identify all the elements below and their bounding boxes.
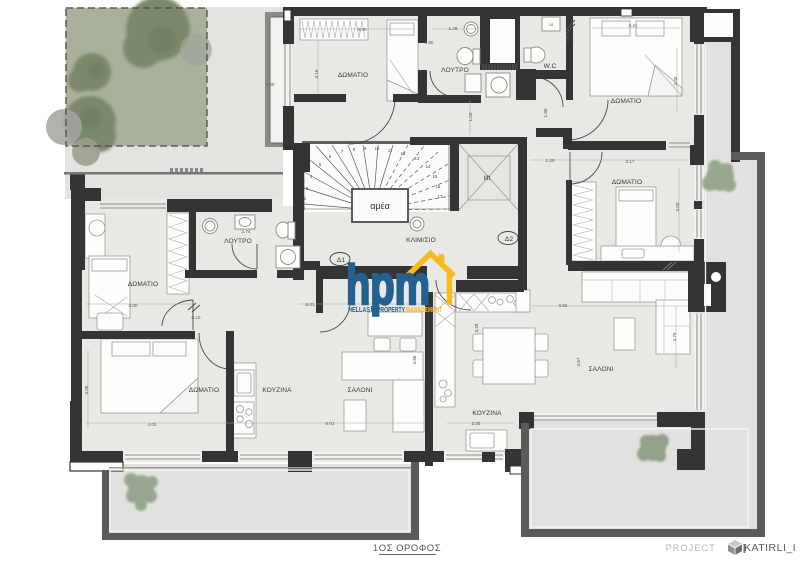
svg-text:ΔΩΜΑΤΙΟ: ΔΩΜΑΤΙΟ	[128, 281, 158, 288]
svg-text:ΔΩΜΑΤΙΟ: ΔΩΜΑΤΙΟ	[338, 72, 368, 79]
svg-text:3.45: 3.45	[673, 76, 678, 85]
svg-text:ΔΩΜΑΤΙΟ: ΔΩΜΑΤΙΟ	[611, 98, 641, 105]
svg-text:Δ2: Δ2	[505, 236, 514, 243]
svg-text:1.20: 1.20	[546, 158, 555, 163]
svg-text:3.00: 3.00	[675, 202, 680, 211]
svg-text:6.82: 6.82	[559, 303, 568, 308]
svg-text:3.00: 3.00	[358, 27, 367, 32]
svg-text:1.80: 1.80	[543, 108, 548, 117]
svg-text:Δ1: Δ1	[337, 257, 346, 264]
svg-text:ΚΛΙΜ/ΣΙΟ: ΚΛΙΜ/ΣΙΟ	[406, 237, 436, 244]
svg-text:KATIRLI_I: KATIRLI_I	[744, 542, 796, 554]
svg-text:αμέα: αμέα	[370, 201, 390, 211]
svg-text:PROPERTY: PROPERTY	[377, 305, 405, 314]
svg-text:10: 10	[375, 146, 380, 151]
svg-text:4.67: 4.67	[576, 357, 581, 366]
svg-text:2.74: 2.74	[242, 229, 251, 234]
svg-text:6.01: 6.01	[306, 302, 315, 307]
svg-text:ΛΟΥΤΡΟ: ΛΟΥΤΡΟ	[441, 67, 469, 74]
svg-text:13: 13	[415, 156, 420, 161]
svg-text:ΚΟΥΖΙΝΑ: ΚΟΥΖΙΝΑ	[262, 387, 292, 394]
svg-text:ΣΑΛΟΝΙ: ΣΑΛΟΝΙ	[347, 387, 372, 394]
svg-text:14: 14	[426, 164, 431, 169]
svg-text:W.C: W.C	[544, 63, 557, 70]
svg-text:ΚΟΥΖΙΝΑ: ΚΟΥΖΙΝΑ	[472, 410, 502, 417]
svg-text:1ΟΣ ΟΡΟΦΟΣ: 1ΟΣ ΟΡΟΦΟΣ	[373, 543, 441, 554]
svg-text:MANAGEMENT: MANAGEMENT	[406, 305, 442, 314]
svg-text:4.66: 4.66	[412, 355, 417, 364]
svg-text:3.00: 3.00	[266, 82, 275, 87]
svg-text:6.01: 6.01	[326, 421, 335, 426]
svg-text:3.05: 3.05	[84, 385, 89, 394]
svg-text:lift: lift	[484, 175, 491, 182]
svg-text:3.79: 3.79	[672, 332, 677, 341]
svg-text:15: 15	[549, 22, 554, 27]
svg-text:HELLAS: HELLAS	[348, 305, 370, 314]
svg-text:11: 11	[388, 148, 393, 153]
svg-text:ΔΩΜΑΤΙΟ: ΔΩΜΑΤΙΟ	[189, 387, 219, 394]
svg-text:ΔΩΜΑΤΙΟ: ΔΩΜΑΤΙΟ	[612, 179, 642, 186]
svg-text:12: 12	[401, 151, 406, 156]
svg-text:3.16: 3.16	[314, 69, 319, 78]
svg-text:4.28: 4.28	[474, 323, 479, 332]
svg-text:4.00: 4.00	[148, 422, 157, 427]
svg-text:3.17: 3.17	[626, 159, 635, 164]
svg-text:0.10: 0.10	[192, 315, 201, 320]
svg-text:3.00: 3.00	[129, 303, 138, 308]
svg-text:17: 17	[438, 194, 443, 199]
svg-text:0.90: 0.90	[425, 40, 434, 45]
svg-text:0.90: 0.90	[565, 34, 570, 43]
svg-text:ΣΑΛΟΝΙ: ΣΑΛΟΝΙ	[588, 366, 613, 373]
svg-text:1.00: 1.00	[468, 112, 473, 121]
svg-text:1.48: 1.48	[449, 26, 458, 31]
svg-text:3.21: 3.21	[629, 23, 638, 28]
svg-text:16: 16	[436, 184, 441, 189]
svg-text:2.25: 2.25	[472, 421, 481, 426]
svg-text:PROJECT: PROJECT	[666, 543, 716, 553]
svg-text:15: 15	[433, 174, 438, 179]
svg-text:ΛΟΥΤΡΟ: ΛΟΥΤΡΟ	[224, 238, 252, 245]
